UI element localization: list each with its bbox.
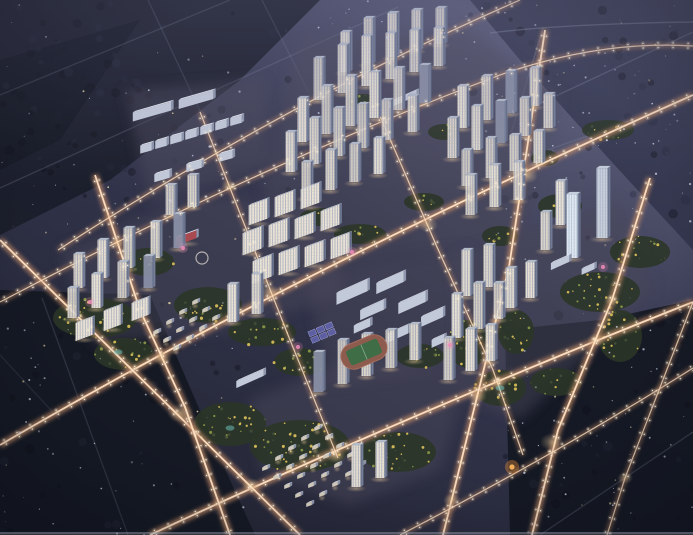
aerial-city-render (0, 0, 693, 535)
masterplan-night-scene (0, 0, 693, 535)
atmosphere-layer (0, 0, 693, 535)
